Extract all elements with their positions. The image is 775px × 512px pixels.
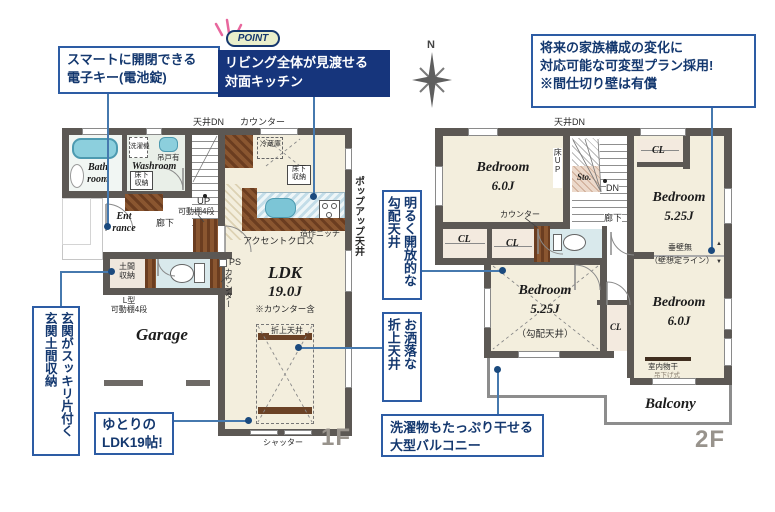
smart-key-callout: スマートに開閉できる 電子キー(電池錠) xyxy=(58,46,220,94)
callout-line xyxy=(107,92,109,226)
coffered-label: 折上天井 xyxy=(269,326,305,335)
compass-star xyxy=(412,52,452,108)
underfloor-storage-box-washroom: 床下 収納 xyxy=(130,171,153,190)
bedroom-br-size: 6.0J xyxy=(634,314,724,329)
genkan-storage-callout: 玄関がスッキリ片付く 玄関土間収納 xyxy=(32,306,80,456)
toilet-tank xyxy=(194,263,205,283)
wall xyxy=(487,226,492,262)
window xyxy=(724,188,732,224)
stair-dot xyxy=(603,179,607,183)
callout-line xyxy=(497,371,499,415)
wall xyxy=(122,135,127,191)
popup-ceiling-label: ポップアップ天井 xyxy=(352,176,364,262)
floor2-label: 2F xyxy=(695,426,725,454)
wall xyxy=(563,136,570,229)
burner xyxy=(322,203,328,209)
coffered-ceiling-callout: お洒落な 折上天井 xyxy=(382,312,422,402)
window xyxy=(518,351,560,358)
sloped-ceiling-note: （勾配天井） xyxy=(495,330,595,341)
drying-bar xyxy=(645,357,691,361)
entrance-label: Ent rance xyxy=(104,211,144,234)
shutter-opening xyxy=(250,430,278,435)
ldk-note-label: ※カウンター含 xyxy=(248,305,322,315)
compass-north-label: N xyxy=(427,39,435,52)
kitchen-sink xyxy=(265,198,296,218)
balcony-railing xyxy=(604,422,732,425)
fridge-label: 冷蔵庫 xyxy=(260,141,281,149)
roomy-ldk-callout: ゆとりの LDK19帖! xyxy=(94,412,174,455)
callout-dot xyxy=(295,344,302,351)
hallway-label-1f: 廊下 xyxy=(156,218,174,228)
washroom-sink xyxy=(159,137,178,152)
wall xyxy=(627,258,634,378)
floorplan-page: 天井DN カウンター Bath room 洗濯機 吊戸有 Washroom 床下… xyxy=(0,0,775,512)
floor-up-label: 床UP xyxy=(553,148,562,188)
accent-wall-hatch xyxy=(225,184,242,240)
closet-1-label: CL xyxy=(458,234,471,246)
callout-line xyxy=(313,97,315,196)
toilet-bowl xyxy=(563,234,586,251)
balcony-railing xyxy=(487,395,607,398)
indoor-drying-label: 室内物干 xyxy=(648,363,678,372)
wall xyxy=(435,258,607,265)
window xyxy=(724,338,732,366)
ps-label: PS xyxy=(229,257,241,267)
wall xyxy=(602,226,607,262)
window xyxy=(345,148,352,170)
no-hanging-wall-label: 垂壁無 xyxy=(668,243,692,252)
counter-2f xyxy=(534,226,550,262)
dn-label: DN xyxy=(606,183,619,193)
stairs-2f-lower xyxy=(572,194,600,226)
window xyxy=(345,348,352,388)
bedroom-bl-size: 5.25J xyxy=(495,302,595,317)
bedroom-br-name: Bedroom xyxy=(634,295,724,311)
window xyxy=(82,128,108,135)
wall xyxy=(103,288,232,295)
wall xyxy=(637,162,690,167)
hallway-label-2f: 廊下 xyxy=(604,213,622,223)
hanging-type-label: 吊下げ式 xyxy=(654,372,680,379)
point-callout: リビング全体が見渡せる 対面キッチン xyxy=(218,50,390,97)
ldk-label: LDK xyxy=(255,263,315,283)
assumed-wall-label: （壁想定ライン） xyxy=(650,256,714,265)
balcony-railing xyxy=(487,358,490,398)
wall xyxy=(103,252,232,259)
arrow-up: ▲ xyxy=(716,241,722,248)
big-balcony-callout: 洗濯物もたっぷり干せる 大型バルコニー xyxy=(381,414,544,457)
window xyxy=(260,128,298,135)
callout-line xyxy=(174,420,248,422)
ceiling-dn-label-2f: 天井DN xyxy=(554,117,585,127)
callout-dot xyxy=(499,267,506,274)
doma-storage-label: 土間 収納 xyxy=(112,262,142,280)
callout-dot xyxy=(245,417,252,424)
ceiling-dn-label-1f: 天井DN xyxy=(193,117,224,127)
bathroom-label: Bath room xyxy=(78,162,118,185)
callout-dot xyxy=(108,268,115,275)
garage-label: Garage xyxy=(136,325,188,345)
garage-post xyxy=(186,380,210,386)
toilet-tank xyxy=(553,234,562,251)
toilet-bowl xyxy=(170,264,194,283)
callout-dot xyxy=(494,366,501,373)
bedroom-tl-size: 6.0J xyxy=(453,179,553,194)
window xyxy=(484,288,491,328)
closet-bm-label: CL xyxy=(610,322,622,332)
callout-dot xyxy=(104,223,111,230)
window xyxy=(468,128,498,136)
arrow-down: ▼ xyxy=(716,259,722,266)
flexible-plan-callout: 将来の家族構成の変化に 対応可能な可変型プラン採用! ※間仕切り壁は有償 xyxy=(531,34,756,108)
window xyxy=(146,128,162,135)
sto-label: Sto. xyxy=(577,172,591,182)
door-opening xyxy=(218,226,225,252)
wall xyxy=(62,128,69,198)
closet-2-label: CL xyxy=(506,238,519,250)
wall xyxy=(185,135,192,191)
washer-label: 洗濯機 xyxy=(130,143,150,150)
window xyxy=(724,298,732,330)
counter-label-side: カウンター xyxy=(224,268,233,316)
shutter-opening xyxy=(284,430,312,435)
callout-line xyxy=(422,270,502,272)
callout-line xyxy=(60,271,62,306)
callout-line xyxy=(300,347,383,349)
wall xyxy=(600,262,607,358)
closet-tr-label: CL xyxy=(652,145,665,157)
wall xyxy=(597,300,632,305)
balcony-railing xyxy=(604,395,607,425)
underfloor-storage-box-kitchen: 床下 収納 xyxy=(287,165,311,185)
callout-dot xyxy=(708,247,715,254)
movable-shelf-label: 可動棚4段 xyxy=(178,207,214,216)
l-shelf-label: L型 可動棚4段 xyxy=(100,296,158,314)
ldk-size-label: 19.0J xyxy=(255,284,315,301)
bathtub xyxy=(72,138,118,159)
balcony-label: Balcony xyxy=(645,396,696,413)
floor1-label: 1F xyxy=(321,424,351,452)
point-badge: POINT xyxy=(226,30,280,47)
hall-shelf xyxy=(193,219,218,252)
counter-label-top: カウンター xyxy=(240,117,285,127)
wall xyxy=(627,136,634,262)
callout-dot xyxy=(310,193,317,200)
stairs-1f xyxy=(192,135,218,232)
garage-post xyxy=(104,380,143,386)
stair-dot xyxy=(203,194,207,198)
callout-line xyxy=(711,108,713,250)
porch-steps xyxy=(62,198,91,245)
window xyxy=(435,166,443,206)
sloped-ceiling-callout: 明るく開放的な 勾配天井 xyxy=(382,190,422,300)
burner xyxy=(331,203,337,209)
stairs-ceiling-hatch xyxy=(572,138,600,166)
bedroom-bl-name: Bedroom xyxy=(495,283,595,299)
doma-shelf xyxy=(145,259,156,288)
window xyxy=(345,250,352,292)
balcony-railing xyxy=(729,385,732,425)
shoe-closet xyxy=(125,194,163,211)
ps-box xyxy=(219,259,227,267)
counter-label-2f: カウンター xyxy=(500,210,540,219)
callout-line xyxy=(60,271,112,273)
shutter-label: シャッター xyxy=(263,438,303,447)
pantry-closet xyxy=(225,135,253,168)
coffered-beam xyxy=(258,407,312,414)
bedroom-tl-name: Bedroom xyxy=(453,160,553,176)
accent-cross-label: アクセントクロス xyxy=(243,236,315,246)
window xyxy=(640,128,686,136)
